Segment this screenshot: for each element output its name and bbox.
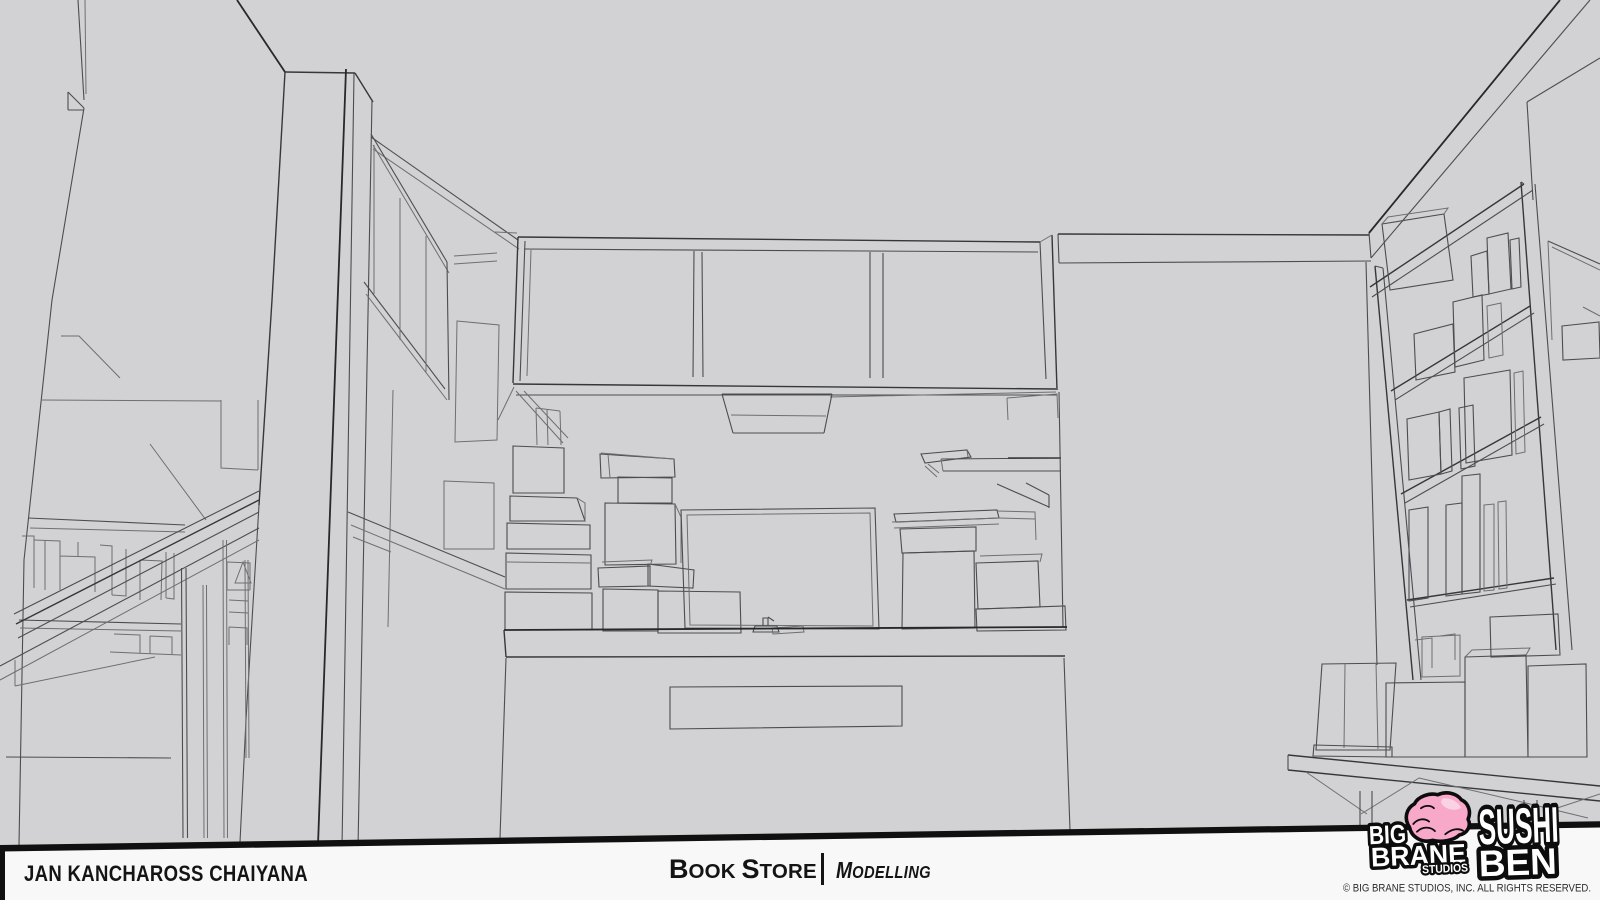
- svg-text:STUDIOS: STUDIOS: [1422, 862, 1469, 876]
- svg-text:JAN KANCHAROSS CHAIYANA: JAN KANCHAROSS CHAIYANA: [24, 861, 308, 886]
- svg-text:BEN: BEN: [1478, 841, 1557, 885]
- svg-text:© BIG BRANE STUDIOS, INC. ALL: © BIG BRANE STUDIOS, INC. ALL RIGHTS RES…: [1343, 883, 1591, 895]
